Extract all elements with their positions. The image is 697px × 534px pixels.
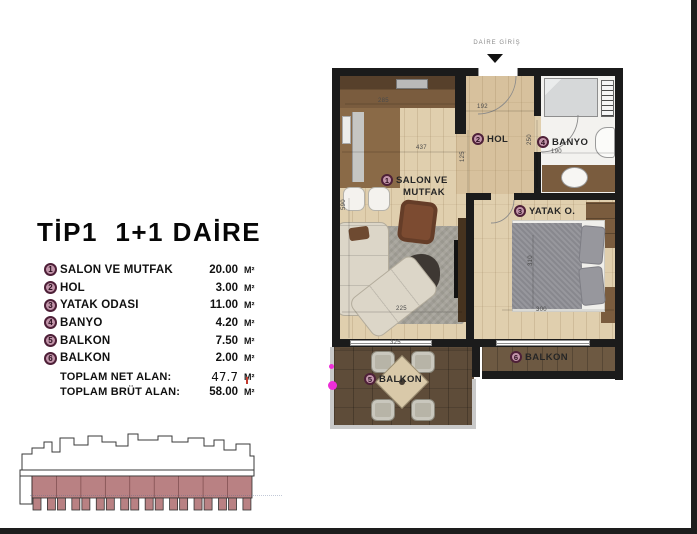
room-number-badge: 5	[364, 373, 376, 385]
room-label-balkon5: 5 BALKON	[364, 373, 422, 385]
room-number-badge: 2	[44, 281, 57, 294]
room-number-badge: 6	[510, 351, 522, 363]
dim-label: 437	[416, 145, 427, 151]
total-brut-value: 58.00	[198, 386, 238, 398]
room-label-hol: 2 HOL	[472, 133, 508, 145]
total-net-value: 47.7	[198, 370, 238, 384]
room-name: HOL	[60, 282, 85, 294]
room-number-badge: 5	[44, 334, 57, 347]
room-legend: 1 SALON VE MUTFAK 20.00 M² 2 HOL 3.00 M²…	[44, 261, 260, 367]
floorplan-page: TİP1 1+1 DAİRE 1 SALON VE MUTFAK 20.00 M…	[0, 0, 697, 534]
dim-label: 310	[528, 255, 534, 266]
area-unit: M²	[244, 336, 260, 346]
room-name: BALKON	[60, 335, 110, 347]
total-brut-label: TOPLAM BRÜT ALAN:	[60, 386, 180, 398]
room-number-badge: 1	[381, 174, 393, 186]
elevation-skyline	[22, 434, 254, 472]
dim-label: 325	[390, 340, 401, 346]
legend-totals: TOPLAM NET ALAN: 47.7 M² TOPLAM BRÜT ALA…	[60, 369, 260, 399]
area-unit: M²	[244, 353, 260, 363]
room-area: 3.00	[196, 282, 238, 294]
legend-row: 1 SALON VE MUTFAK 20.00 M²	[44, 261, 260, 279]
room-name: YATAK ODASI	[60, 299, 139, 311]
room-area: 20.00	[196, 264, 238, 276]
legend-row: 6 BALKON 2.00 M²	[44, 349, 260, 367]
dim-label: 590	[341, 199, 347, 210]
page-edge-right	[691, 0, 697, 534]
legend-row: 5 BALKON 7.50 M²	[44, 332, 260, 350]
entrance-arrow-icon	[487, 54, 503, 63]
total-net-label: TOPLAM NET ALAN:	[60, 371, 171, 383]
dim-label: 190	[551, 149, 562, 155]
magenta-artifact-dot	[328, 381, 337, 390]
room-number-badge: 2	[472, 133, 484, 145]
magenta-artifact-dot	[329, 364, 334, 369]
room-label-banyo: 4 BANYO	[537, 136, 588, 148]
dim-label: 192	[477, 104, 488, 110]
room-area: 11.00	[196, 299, 238, 311]
dim-label: 300	[536, 307, 547, 313]
room-name: BANYO	[60, 317, 103, 329]
legend-row: 3 YATAK ODASI 11.00 M²	[44, 296, 260, 314]
legend-row: 2 HOL 3.00 M²	[44, 279, 260, 297]
area-unit: M²	[244, 318, 260, 328]
page-edge-bottom	[0, 528, 697, 534]
room-label-yatak: 3 YATAK O.	[514, 205, 575, 217]
room-label-salon: 1 SALON VE MUTFAK	[381, 174, 448, 198]
room-number-badge: 3	[44, 299, 57, 312]
room-name: SALON VE MUTFAK	[60, 264, 173, 276]
room-label-balkon6: 6 BALKON	[510, 351, 568, 363]
dim-label: 125	[460, 151, 466, 162]
dim-label: 250	[527, 134, 533, 145]
room-name: BALKON	[60, 352, 110, 364]
room-number-badge: 6	[44, 352, 57, 365]
page-title: TİP1 1+1 DAİRE	[37, 217, 261, 248]
area-unit: M²	[244, 300, 260, 310]
entrance-label: DAİRE GİRİŞ	[452, 40, 542, 46]
room-number-badge: 4	[537, 136, 549, 148]
dim-label: 225	[396, 306, 407, 312]
total-brut-row: TOPLAM BRÜT ALAN: 58.00 M²	[60, 384, 260, 399]
room-number-badge: 1	[44, 263, 57, 276]
room-number-badge: 3	[514, 205, 526, 217]
room-area: 2.00	[196, 352, 238, 364]
red-tick-artifact	[246, 377, 248, 384]
dim-label: 285	[378, 98, 389, 104]
legend-row: 4 BANYO 4.20 M²	[44, 314, 260, 332]
area-unit: M²	[244, 387, 260, 397]
room-area: 7.50	[196, 335, 238, 347]
fine-print-illegible	[30, 495, 282, 498]
area-unit: M²	[244, 265, 260, 275]
room-area: 4.20	[196, 317, 238, 329]
building-key-elevation	[16, 424, 258, 520]
room-number-badge: 4	[44, 316, 57, 329]
area-unit: M²	[244, 283, 260, 293]
total-net-row: TOPLAM NET ALAN: 47.7 M²	[60, 369, 260, 384]
